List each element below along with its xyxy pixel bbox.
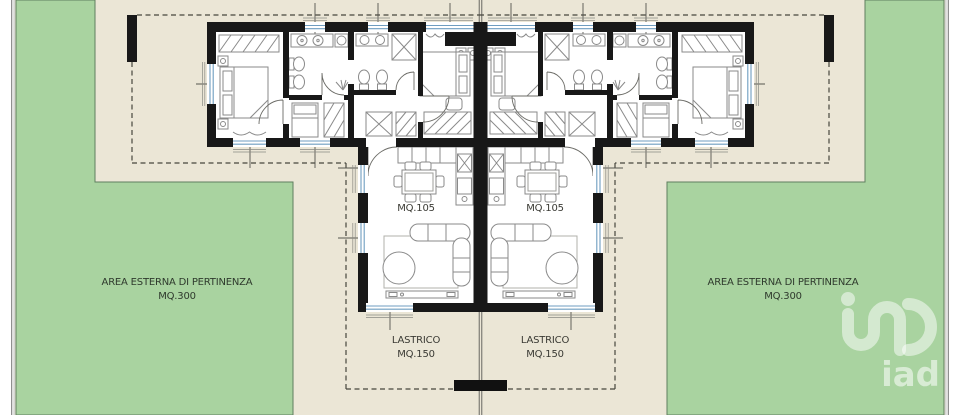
terrace-left-label-line2: MQ.150 — [392, 348, 440, 362]
garden-right-label-line1: AREA ESTERNA DI PERTINENZA — [708, 276, 859, 290]
garden-left-label-line2: MQ.300 — [102, 290, 253, 304]
unit-right-area-label: MQ.105 — [526, 202, 564, 216]
site-plan-svg: iad — [0, 0, 960, 415]
garden-right-label-line2: MQ.300 — [708, 290, 859, 304]
boundary-gate-block — [454, 380, 507, 391]
watermark-text: iad — [881, 355, 940, 395]
terrace-right-label-line1: LASTRICO — [521, 334, 569, 348]
garden-left-label: AREA ESTERNA DI PERTINENZA MQ.300 — [102, 276, 253, 304]
garden-right-label: AREA ESTERNA DI PERTINENZA MQ.300 — [708, 276, 859, 304]
terrace-left-label: LASTRICO MQ.150 — [392, 334, 440, 362]
unit-left-area-label: MQ.105 — [397, 202, 435, 216]
party-wall — [474, 22, 488, 312]
floor-plan-image: iad — [0, 0, 960, 415]
terrace-right-label-line2: MQ.150 — [521, 348, 569, 362]
garden-left-label-line1: AREA ESTERNA DI PERTINENZA — [102, 276, 253, 290]
terrace-left-label-line1: LASTRICO — [392, 334, 440, 348]
terrace-right-label: LASTRICO MQ.150 — [521, 334, 569, 362]
